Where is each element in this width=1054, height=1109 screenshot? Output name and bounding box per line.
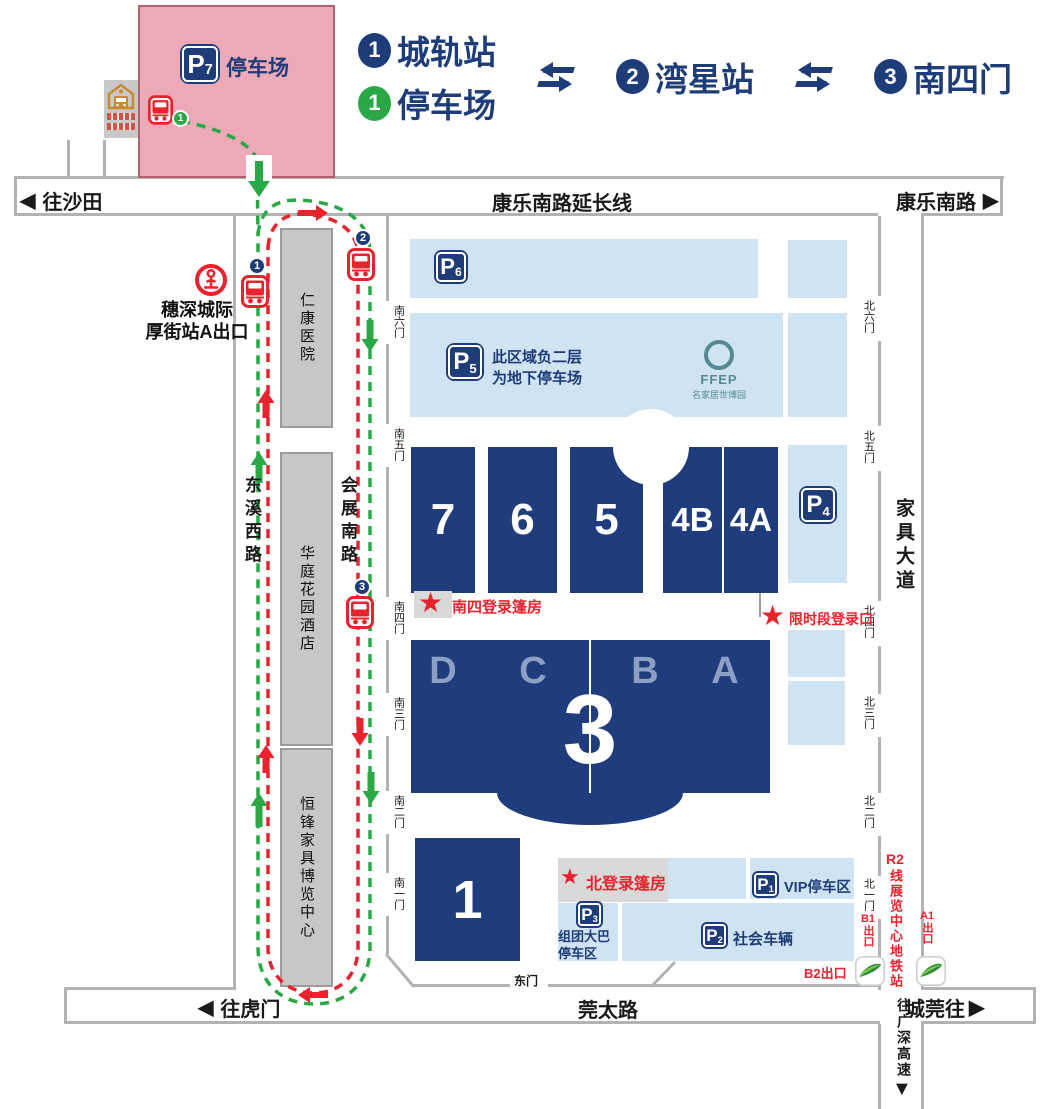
a1-exit-suffix: 出口 (921, 922, 933, 944)
hall-3-section-d: D (423, 650, 463, 693)
road-border (921, 216, 924, 990)
p7-label: 停车场 (226, 52, 289, 82)
p2-icon: P2 (701, 922, 728, 949)
left-arrow-icon: ◀ (20, 188, 35, 213)
hall-3-section-a: A (705, 650, 745, 693)
gate-north-6: 北六门 (862, 300, 875, 333)
venue-boundary (878, 836, 881, 876)
ffep-name: FFEP (690, 372, 748, 387)
building-renkang-hospital: 仁康医院 (280, 228, 333, 428)
bus-icon (347, 248, 375, 281)
route-arrow-down (362, 320, 379, 352)
route-arrow-down (352, 718, 369, 746)
north-tent-label: 北登录篷房 (586, 870, 666, 894)
venue-boundary (878, 646, 881, 694)
venue-boundary (878, 341, 881, 426)
road-border (14, 176, 17, 216)
legend-col-1: 1 城轨站 1 停车场 (358, 26, 496, 127)
road-border (1033, 990, 1036, 1024)
b1-exit-prefix: B1 (860, 913, 876, 925)
north-square (788, 681, 845, 745)
p1-icon: P1 (752, 871, 779, 898)
gate-north-5: 北五门 (862, 430, 875, 463)
legend-rail-stop-label: 城轨站 (397, 26, 496, 74)
road-border (14, 213, 878, 216)
venue-boundary (386, 467, 389, 597)
gate-south-3: 南三门 (392, 697, 405, 730)
route-arrow-up (258, 390, 275, 418)
road-to-shatian: ◀往沙田 (20, 186, 102, 215)
road-to-guancheng: 城莞往▶ (905, 993, 984, 1022)
parking-divider (746, 858, 750, 899)
p7-stop-badge: 1 (172, 110, 189, 127)
star-icon: ★ (418, 589, 443, 617)
route-arrow-up (258, 745, 275, 773)
b1-exit-suffix: 出口 (862, 925, 874, 947)
venue-boundary (386, 640, 389, 693)
rail-station-line2: 厚街站A出口 (133, 321, 261, 343)
gate-south-2: 南二门 (392, 795, 405, 828)
north-strip (788, 240, 847, 298)
hall-6: 6 (488, 447, 557, 593)
hall-notch (613, 409, 689, 485)
gate-south-4: 南四门 (392, 601, 405, 634)
limited-entry-label: 限时段登录口 (789, 609, 873, 629)
p3-label: 组团大巴 停车区 (558, 928, 610, 962)
venue-boundary (386, 344, 389, 424)
legend-parking-stop-label: 停车场 (397, 79, 496, 127)
bus-terminal-icon (107, 83, 135, 110)
road-huizhan-south: 会展南路 (335, 476, 360, 568)
down-arrow-icon: ▼ (892, 1078, 912, 1101)
legend: 1 城轨站 1 停车场 2 湾星站 3 南四门 (358, 26, 1012, 127)
a1-exit-prefix: A1 (919, 910, 935, 922)
p5-icon: P5 (446, 343, 484, 381)
bus-icon (241, 275, 269, 308)
p5-note-line2: 为地下停车场 (492, 368, 582, 389)
left-arrow-icon: ◀ (198, 995, 213, 1020)
venue-boundary (878, 216, 881, 296)
p6-icon: P6 (434, 250, 468, 284)
road-border (67, 140, 70, 178)
p5-note: 此区域负二层 为地下停车场 (492, 347, 582, 389)
road-guantai: 莞太路 (578, 994, 638, 1023)
ffep-subtitle: 名家居世博园 (682, 388, 756, 401)
exchange-arrow-icon (532, 59, 580, 95)
parking-stop-badge: 1 (358, 86, 391, 121)
stop-3-badge: 3 (874, 59, 907, 94)
road-border (1000, 176, 1003, 216)
r2-prefix: R2 (886, 851, 904, 867)
p4-icon: P4 (799, 486, 837, 524)
road-dongxi-west: 东溪西路 (239, 476, 264, 568)
route-arrow-left (298, 987, 328, 1003)
legend-south4-stop: 3 南四门 (874, 53, 1012, 101)
venue-boundary (386, 916, 389, 954)
road-to-humen: ◀往虎门 (198, 993, 280, 1022)
route-arrow-down (363, 772, 380, 804)
legend-wanxing-stop: 2 湾星站 (616, 53, 754, 101)
r2-metro-station-label: R2 线展览中心地铁站 (886, 851, 904, 989)
road-kangle: 康乐南路▶ (896, 186, 998, 215)
gate-south-6: 南六门 (392, 305, 405, 338)
east-gate-label: 东门 (514, 972, 538, 989)
legend-rail-stop: 1 城轨站 (358, 26, 496, 74)
route-arrow-up (251, 793, 268, 827)
building-huating-hotel: 华庭花园酒店 (280, 452, 333, 746)
stop-2-badge: 2 (354, 229, 372, 247)
p1-label: VIP停车区 (784, 876, 851, 897)
star-icon: ★ (560, 866, 580, 888)
hall-1: 1 (415, 838, 520, 961)
p5-note-line1: 此区域负二层 (492, 347, 582, 368)
venue-boundary (878, 737, 881, 793)
star-icon: ★ (760, 602, 785, 630)
p7-icon: P7 (180, 44, 220, 84)
stop-2-badge: 2 (616, 59, 649, 94)
stop-3-badge: 3 (353, 578, 371, 596)
ffep-logo-icon (704, 340, 734, 370)
road-border (64, 990, 67, 1024)
right-arrow-icon: ▶ (969, 995, 984, 1020)
gate-south-1: 南一门 (392, 877, 405, 910)
venue-boundary (386, 216, 389, 301)
a1-exit-label: A1 出口 (919, 910, 935, 944)
road-jiaju-avenue: 家具大道 (890, 498, 917, 594)
p3-label-line2: 停车区 (558, 945, 610, 962)
venue-boundary (878, 471, 881, 601)
p3-icon: P3 (576, 901, 603, 928)
building-hengfeng-expo: 恒锋家具博览中心 (280, 748, 333, 987)
road-to-guangshen: 往广深高速 (894, 998, 914, 1078)
gate-north-1: 北一门 (862, 878, 875, 911)
right-arrow-icon: ▶ (983, 188, 998, 213)
hall-7: 7 (411, 447, 475, 593)
gate-south-5: 南五门 (392, 428, 405, 461)
venue-boundary (386, 834, 389, 873)
bus-icon (346, 596, 374, 629)
metro-logo-icon (916, 956, 946, 986)
parking-divider (618, 903, 622, 961)
china-railway-icon (193, 262, 229, 298)
north-strip (788, 313, 847, 417)
bus-terminal-text (107, 123, 135, 130)
road-border (64, 987, 236, 990)
b1-exit-label: B1 出口 (860, 913, 876, 947)
metro-logo-icon (855, 956, 885, 986)
road-border (878, 1024, 881, 1109)
road-border (103, 140, 106, 178)
hall-4a: 4A (724, 447, 778, 593)
road-border (921, 987, 1036, 990)
bus-icon (148, 95, 173, 125)
stop-1-badge: 1 (358, 33, 391, 68)
stop-1-badge: 1 (248, 257, 266, 275)
exchange-arrow-icon (790, 59, 838, 95)
south4-tent-label: 南四登录篷房 (452, 596, 542, 617)
road-border (548, 984, 881, 987)
p2-label: 社会车辆 (733, 928, 793, 949)
road-border (412, 984, 510, 987)
gate-north-2: 北二门 (862, 795, 875, 828)
p3-label-line1: 组团大巴 (558, 928, 610, 945)
venue-boundary (386, 736, 389, 791)
venue-boundary-diagonal (386, 954, 414, 987)
north-square (788, 630, 845, 677)
bus-terminal-text (107, 113, 135, 120)
road-kangle-ext: 康乐南路延长线 (492, 187, 632, 216)
gate-north-3: 北三门 (862, 696, 875, 729)
legend-parking-stop: 1 停车场 (358, 79, 496, 127)
r2-name: 线展览中心地铁站 (886, 869, 905, 989)
legend-south4-label: 南四门 (913, 53, 1012, 101)
legend-wanxing-label: 湾星站 (655, 53, 754, 101)
p7-parking-area (138, 5, 335, 178)
b2-exit-label: B2出口 (804, 963, 847, 982)
hall-3-number: 3 (490, 674, 690, 784)
road-border (64, 1021, 880, 1024)
road-border (921, 1024, 924, 1109)
